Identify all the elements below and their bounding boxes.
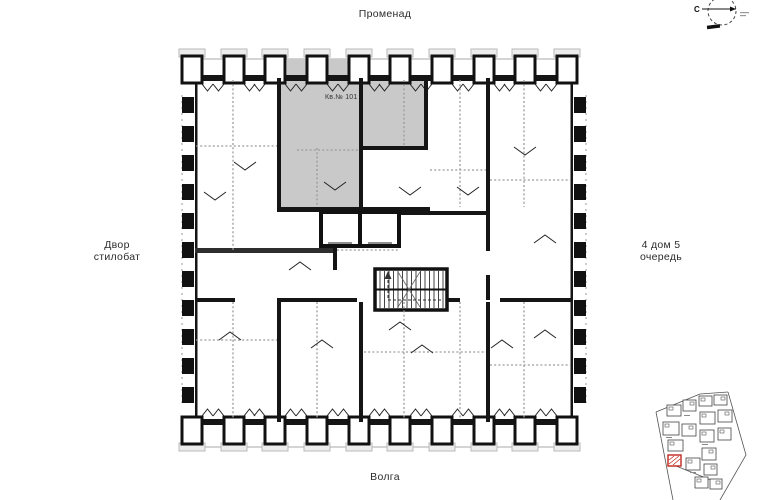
window-marks-bottom [202,409,557,416]
apartment-101-label: Кв.№ 101 [325,94,357,101]
compass: С [694,0,749,29]
elevator-shafts [321,212,399,246]
compass-circle [708,0,736,25]
compass-north-label: С [694,5,700,14]
plan-canvas: Кв.№ 101 [0,0,770,500]
floor-plan: Кв.№ 101 [179,49,586,451]
pilasters-right [574,97,586,403]
floor-plan-page: Променад Волга Двор стилобат 4 дом 5 оче… [0,0,770,500]
minimap-highlighted-building[interactable] [668,455,681,466]
pilasters-left [182,97,194,403]
site-minimap[interactable] [656,392,746,500]
staircase [375,269,447,310]
